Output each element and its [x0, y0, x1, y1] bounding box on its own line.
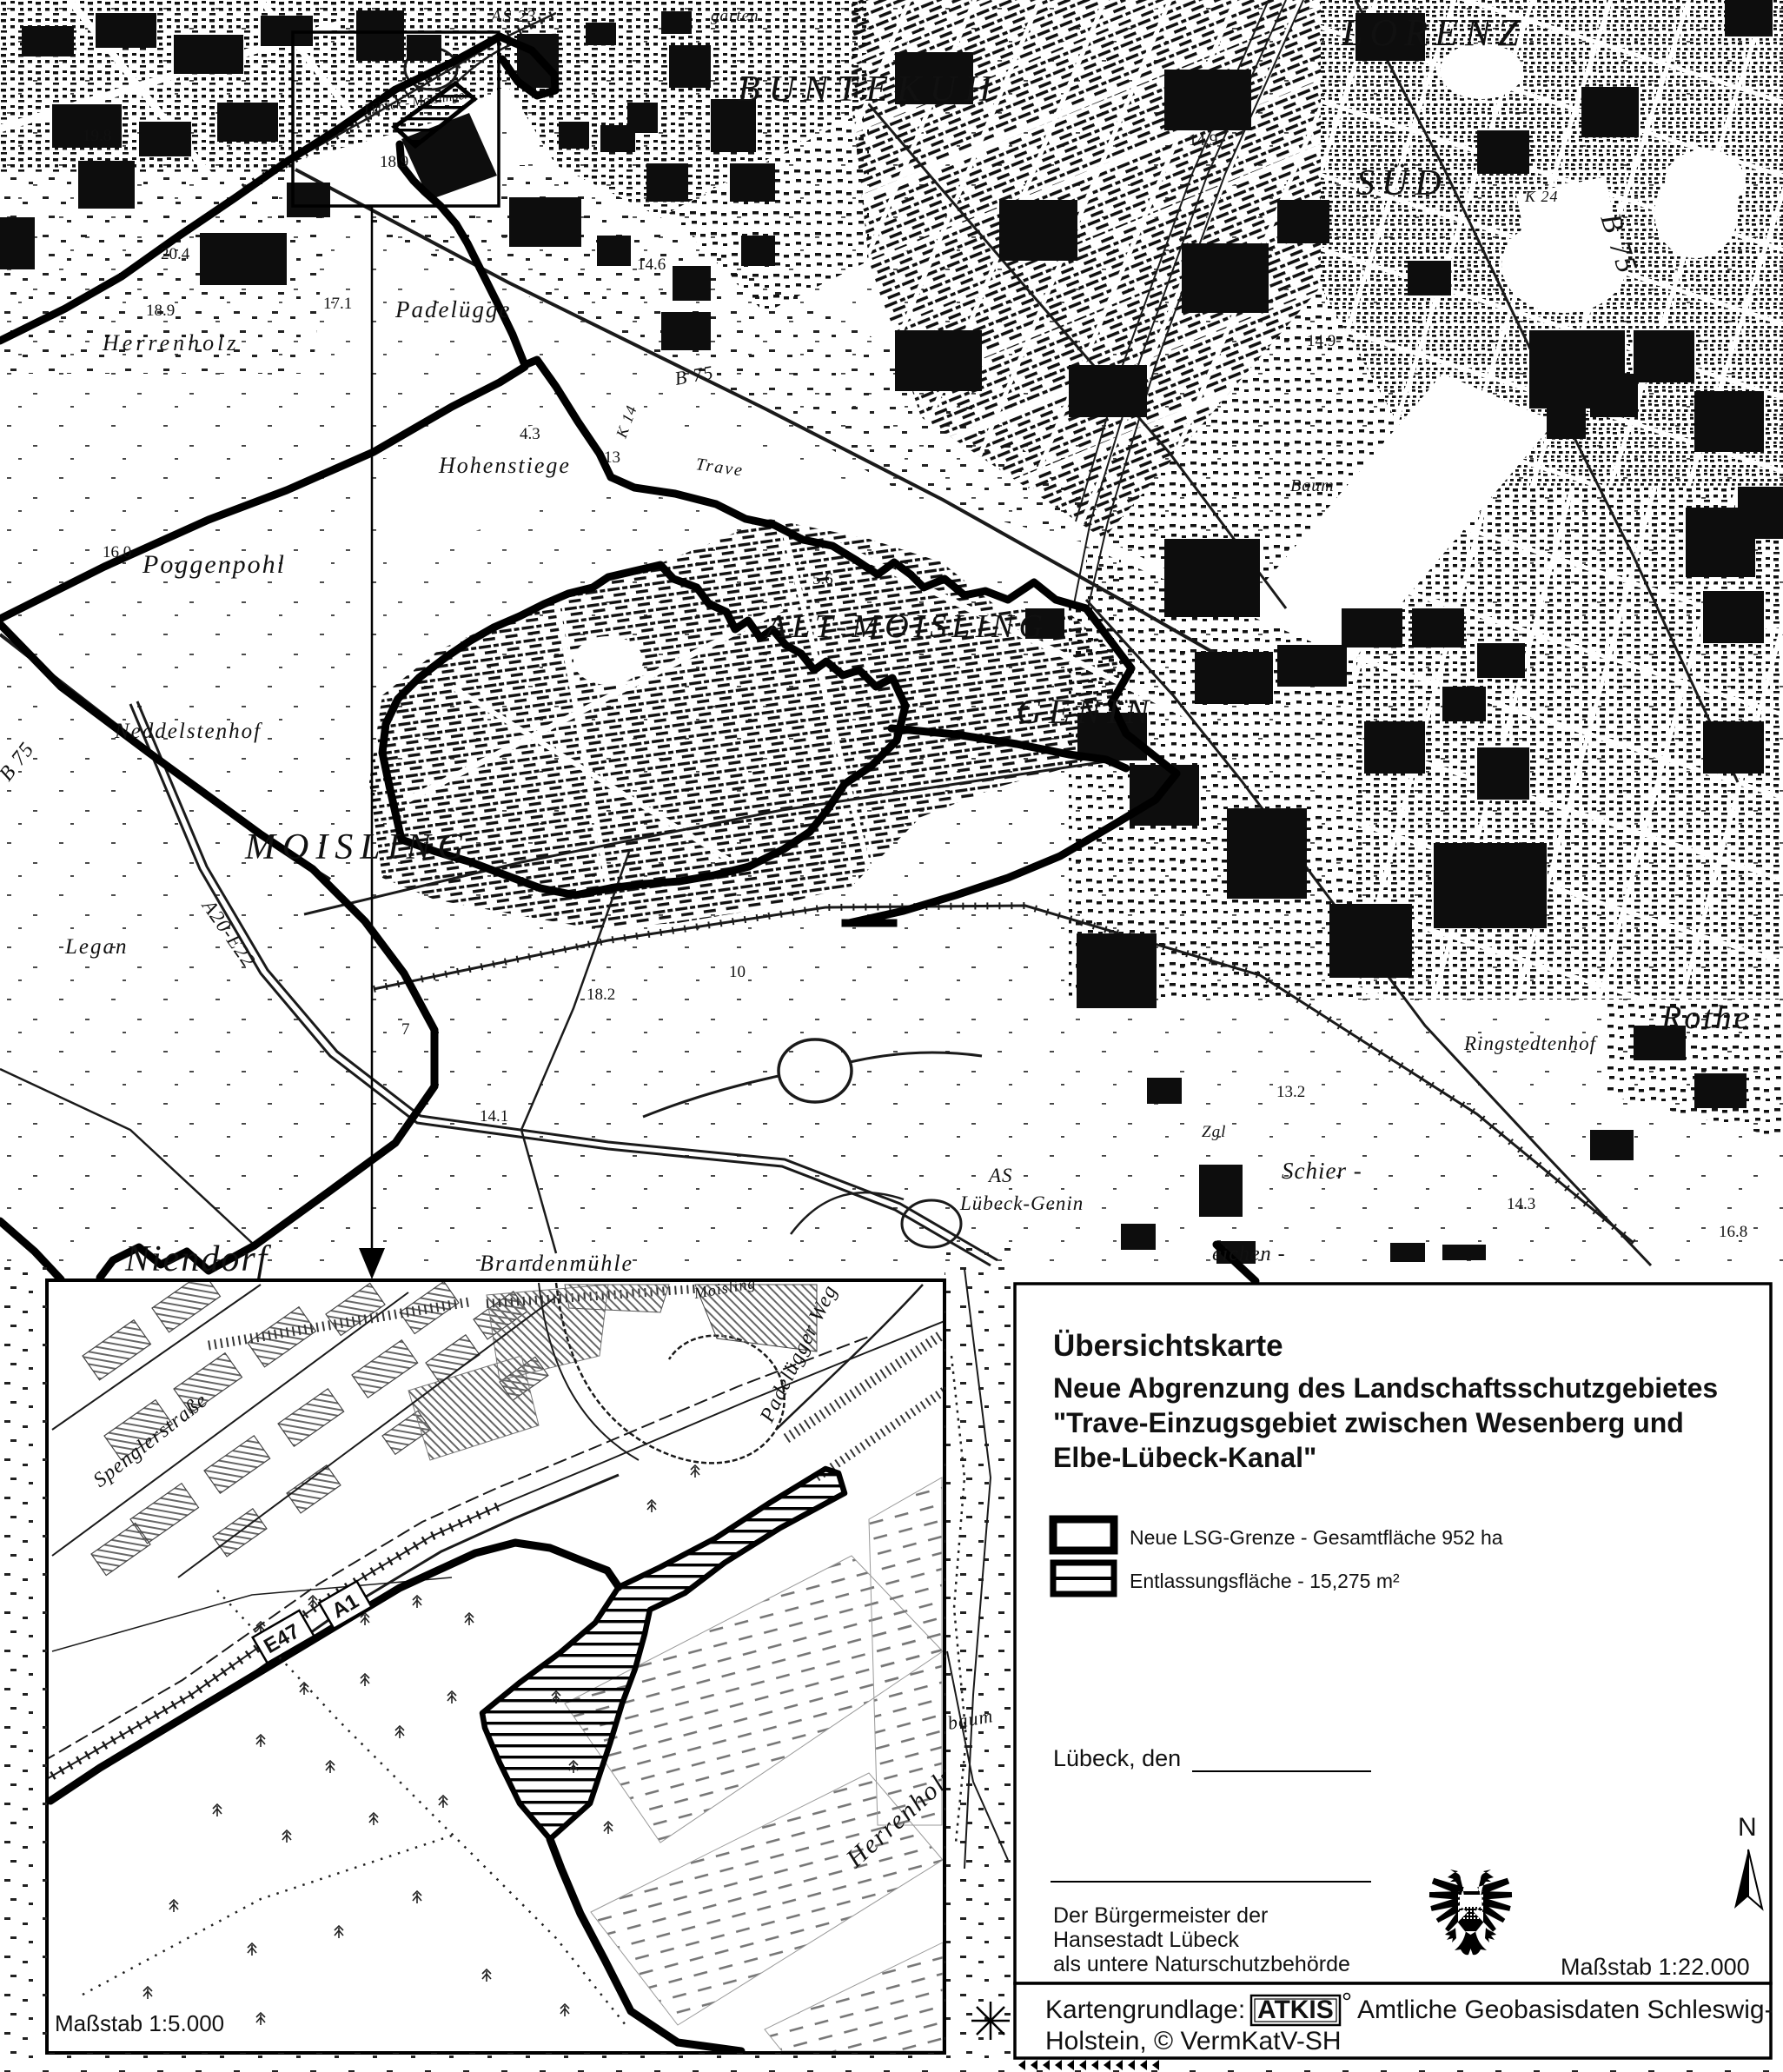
svg-text:als untere Naturschutzbehörde: als untere Naturschutzbehörde — [1053, 1952, 1350, 1976]
svg-text:14.9: 14.9 — [1189, 131, 1217, 149]
svg-text:eichen -: eichen - — [1212, 1243, 1286, 1265]
svg-text:Maßstab 1:22.000: Maßstab 1:22.000 — [1561, 1954, 1750, 1980]
svg-text:18.2: 18.2 — [587, 986, 615, 1004]
svg-text:10: 10 — [729, 963, 746, 981]
svg-text:Padelügge: Padelügge — [394, 296, 511, 322]
svg-text:5.6: 5.6 — [812, 570, 833, 588]
svg-text:Baum: Baum — [1290, 476, 1335, 495]
svg-text:Rothe: Rothe — [1660, 999, 1752, 1036]
svg-text:14.3: 14.3 — [1507, 1195, 1535, 1213]
svg-text:Brandenmühle: Brandenmühle — [480, 1251, 633, 1276]
svg-text:Poggenpohl: Poggenpohl — [142, 550, 286, 579]
svg-text:Hansestadt Lübeck: Hansestadt Lübeck — [1053, 1928, 1240, 1952]
svg-text:ATKIS: ATKIS — [1257, 1996, 1334, 2024]
svg-text:GENIN: GENIN — [1017, 692, 1156, 731]
svg-text:17.1: 17.1 — [323, 295, 352, 313]
svg-text:14.6: 14.6 — [637, 256, 666, 274]
svg-text:7: 7 — [401, 1020, 410, 1039]
svg-text:Zgl: Zgl — [1202, 1123, 1226, 1141]
svg-text:MOISLING: MOISLING — [244, 827, 471, 867]
svg-text:Der Bürgermeister der: Der Bürgermeister der — [1053, 1903, 1268, 1928]
svg-text:13.2: 13.2 — [1276, 1083, 1305, 1101]
svg-text:Lübeck, den: Lübeck, den — [1053, 1745, 1181, 1771]
svg-text:ALT-MOISLING: ALT-MOISLING — [764, 608, 1048, 645]
svg-text:K 24: K 24 — [1524, 188, 1559, 205]
svg-text:BUNTEKUH: BUNTEKUH — [738, 70, 1000, 110]
svg-text:Ringstedtenhof: Ringstedtenhof — [1463, 1033, 1599, 1054]
svg-text:Entlassungsfläche - 15,275 m²: Entlassungsfläche - 15,275 m² — [1130, 1570, 1400, 1592]
svg-text:18.9: 18.9 — [380, 153, 408, 171]
svg-text:Neue LSG-Grenze - Gesamtfläche: Neue LSG-Grenze - Gesamtfläche 952 ha — [1130, 1526, 1503, 1549]
svg-text:"Trave-Einzugsgebiet zwischen: "Trave-Einzugsgebiet zwischen Wesenberg … — [1053, 1407, 1684, 1438]
svg-text:4.3: 4.3 — [520, 425, 540, 443]
svg-text:N: N — [1738, 1813, 1757, 1842]
svg-text:19.8: 19.8 — [83, 127, 111, 145]
svg-text:13: 13 — [604, 448, 620, 467]
svg-text:Neddelstenhof: Neddelstenhof — [114, 720, 262, 743]
svg-text:18.9: 18.9 — [146, 302, 175, 320]
svg-text:16.0: 16.0 — [103, 543, 131, 561]
svg-text:AS: AS — [987, 1165, 1013, 1186]
svg-text:LORENZ: LORENZ — [1341, 11, 1526, 54]
svg-text:16.8: 16.8 — [1719, 1223, 1747, 1241]
svg-text:Maßstab 1:5.000: Maßstab 1:5.000 — [55, 2010, 224, 2036]
svg-text:Kartengrundlage:: Kartengrundlage: — [1045, 1996, 1245, 2024]
svg-text:Neue Abgrenzung des Landschaft: Neue Abgrenzung des Landschaftsschutzgeb… — [1053, 1372, 1718, 1404]
svg-text:Schier -: Schier - — [1282, 1158, 1362, 1184]
svg-text:20.4: 20.4 — [161, 245, 190, 263]
svg-text:Hohenstiege: Hohenstiege — [438, 453, 571, 478]
svg-text:Elbe-Lübeck-Kanal": Elbe-Lübeck-Kanal" — [1053, 1442, 1316, 1473]
svg-text:Übersichtskarte: Übersichtskarte — [1053, 1329, 1283, 1363]
svg-text:14.9: 14.9 — [1307, 332, 1336, 350]
svg-text:14.1: 14.1 — [480, 1107, 508, 1126]
svg-text:AS 23: AS 23 — [489, 7, 536, 26]
svg-text:Amtliche Geobasisdaten Schlesw: Amtliche Geobasisdaten Schleswig- — [1357, 1996, 1773, 2024]
svg-text:Lübeck-Genin: Lübeck-Genin — [959, 1192, 1084, 1214]
svg-text:Legan: Legan — [64, 935, 129, 959]
svg-text:SÜD: SÜD — [1356, 163, 1448, 203]
svg-text:Herrenholz: Herrenholz — [102, 330, 239, 355]
svg-text:Holstein, © VermKatV-SH: Holstein, © VermKatV-SH — [1045, 2027, 1342, 2055]
svg-text:Niendorf: Niendorf — [124, 1239, 272, 1279]
svg-text:gärten: gärten — [711, 7, 759, 25]
